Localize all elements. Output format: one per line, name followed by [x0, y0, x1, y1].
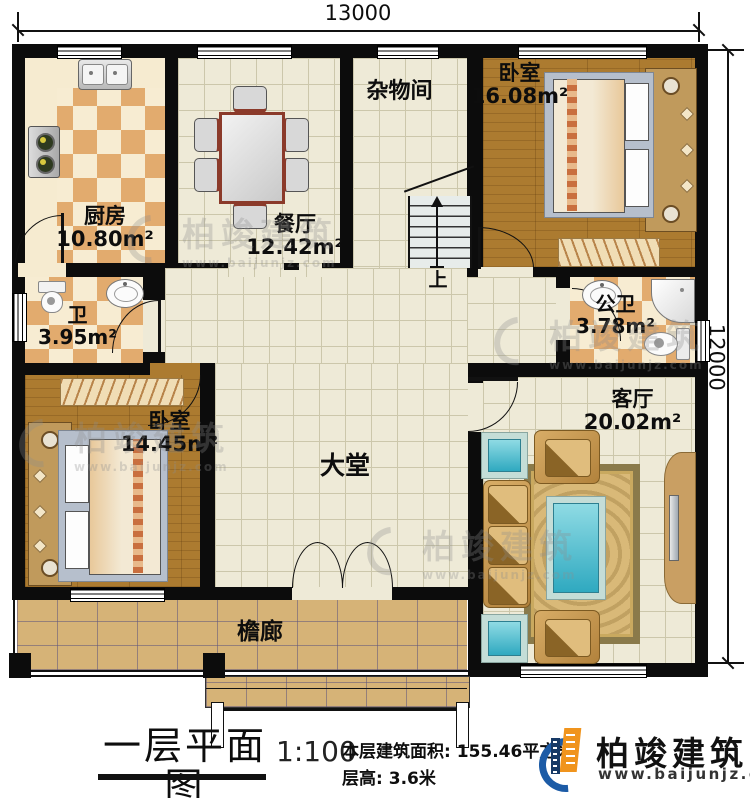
label-bath: 卫 3.95m²: [30, 305, 125, 348]
label-public-bath-name: 公卫: [596, 292, 636, 316]
label-dining: 餐厅 12.42m²: [235, 213, 355, 258]
label-living: 客厅 20.02m²: [575, 388, 690, 433]
plan-title-underline: [98, 774, 266, 780]
label-kitchen-area: 10.80m²: [56, 227, 154, 251]
living-side-table-top: [481, 432, 528, 479]
dining-chair-right-2: [282, 158, 309, 192]
public-bath-window: [695, 320, 710, 362]
bedroom-top-window: [518, 45, 647, 59]
floor-plan: 13000 12000: [0, 0, 750, 798]
dining-chair-right-1: [282, 118, 309, 152]
entry-door-opening: [292, 587, 392, 600]
label-living-name: 客厅: [612, 387, 654, 411]
stairs-arrow-foot: [430, 266, 444, 268]
label-porch: 檐廊: [220, 620, 300, 645]
living-window: [520, 664, 647, 678]
porch-edge-line1: [13, 670, 468, 672]
room-hall-mid-floor: [467, 277, 556, 363]
tv-icon: [669, 495, 679, 561]
porch-column-left: [9, 653, 31, 678]
bedroom-left-door-opening: [150, 363, 200, 375]
brand-logo-icon: [538, 726, 592, 784]
label-bedroom-left-area: 14.45m²: [121, 432, 219, 456]
label-living-area: 20.02m²: [584, 410, 682, 434]
living-armchair-bottom: [534, 610, 600, 664]
label-public-bath: 公卫 3.78m²: [568, 294, 663, 337]
plan-area-label: 本层建筑面积:: [342, 742, 451, 762]
porch-front-line: [224, 708, 456, 711]
bedroom-left-window: [70, 588, 165, 602]
kitchen-window: [57, 45, 122, 59]
living-door-leaf: [468, 377, 518, 381]
bedroom-top-door-opening: [478, 267, 533, 277]
label-bath-area: 3.95m²: [38, 325, 117, 349]
kitchen-stove: [28, 126, 60, 178]
label-bedroom-top-area: 16.08m²: [471, 84, 569, 108]
dining-chair-top: [233, 86, 267, 113]
dining-passage-stop: [284, 263, 299, 270]
label-bedroom-left: 卧室 14.45m²: [112, 410, 227, 455]
living-side-table-bottom: [481, 614, 528, 663]
brand-website: www.baijunjz.com: [598, 765, 750, 783]
label-bath-name: 卫: [68, 303, 88, 327]
plan-height-line: 层高: 3.6米: [342, 764, 436, 789]
porch-step-apron: [205, 676, 470, 708]
bedroom-top-wardrobe: [558, 238, 660, 267]
bath-window: [12, 293, 27, 342]
stairs-arrow-stem: [436, 206, 438, 266]
dining-chair-left-2: [194, 158, 221, 192]
dining-passage-opening: [228, 263, 322, 277]
dimension-top-line: [18, 30, 700, 32]
living-sofa-main: [483, 480, 531, 608]
bath-sink: [106, 279, 144, 308]
label-dining-area: 12.42m²: [246, 235, 344, 259]
living-armchair-top: [534, 430, 600, 484]
dining-window: [197, 45, 292, 59]
bath-door-leaf: [158, 300, 161, 352]
plan-height-value: 3.6米: [389, 769, 436, 789]
label-bedroom-top-name: 卧室: [499, 61, 541, 85]
dining-chair-left-1: [194, 118, 221, 152]
porch-column-mid: [203, 653, 225, 678]
dimension-top-label: 13000: [318, 2, 398, 25]
plan-title: 一层平面图: [95, 726, 275, 798]
stairs-arrow-head: [431, 196, 443, 207]
label-kitchen: 厨房 10.80m²: [45, 205, 165, 250]
living-tv-cabinet: [664, 452, 696, 604]
label-dining-name: 餐厅: [274, 212, 316, 236]
bedroom-top-door-leaf: [478, 227, 481, 269]
label-kitchen-name: 厨房: [84, 204, 126, 228]
kitchen-door-opening: [18, 263, 66, 277]
kitchen-sink: [78, 59, 132, 90]
label-hall: 大堂: [300, 452, 390, 479]
plan-height-label: 层高:: [342, 769, 383, 789]
label-public-bath-area: 3.78m²: [576, 314, 655, 338]
stairs-up-label: 上: [420, 270, 456, 291]
label-storage: 杂物间: [342, 80, 457, 104]
porch-step-line: [206, 688, 467, 689]
label-bedroom-top: 卧室 16.08m²: [462, 62, 577, 107]
bedroom-left-wardrobe: [60, 378, 184, 406]
storage-window: [377, 45, 439, 59]
plan-scale: 1:100: [276, 737, 346, 767]
living-coffee-table: [546, 496, 606, 600]
dining-table: [219, 112, 285, 204]
label-bedroom-left-name: 卧室: [149, 409, 191, 433]
